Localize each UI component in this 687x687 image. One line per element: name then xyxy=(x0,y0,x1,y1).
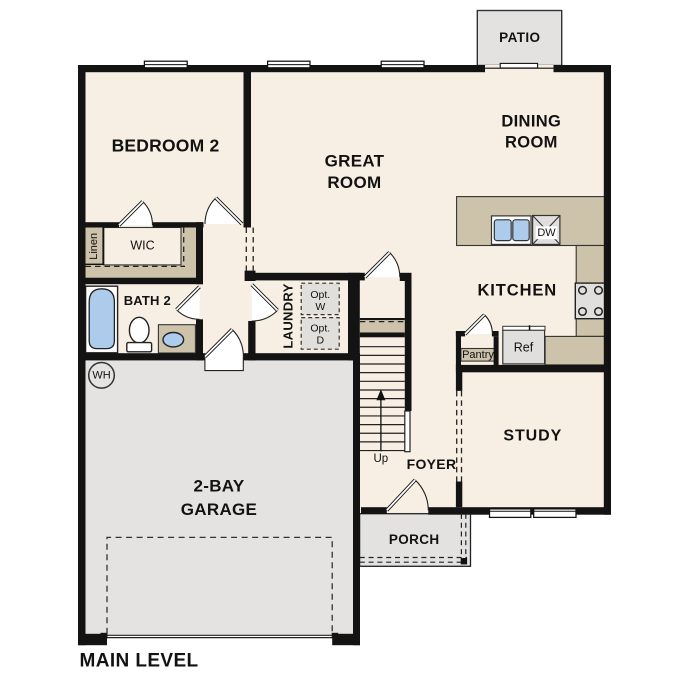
svg-text:Up: Up xyxy=(373,453,388,465)
svg-text:FOYER: FOYER xyxy=(407,456,457,472)
svg-text:PORCH: PORCH xyxy=(389,532,440,547)
svg-text:Linen: Linen xyxy=(88,233,100,260)
svg-text:Opt.: Opt. xyxy=(310,323,330,335)
svg-text:MAIN LEVEL: MAIN LEVEL xyxy=(80,651,199,672)
svg-text:DINING: DINING xyxy=(501,113,561,131)
svg-text:BATH 2: BATH 2 xyxy=(124,293,171,308)
svg-text:ROOM: ROOM xyxy=(327,173,381,192)
svg-text:LAUNDRY: LAUNDRY xyxy=(281,283,296,348)
svg-text:WH: WH xyxy=(92,370,110,382)
svg-text:D: D xyxy=(317,335,325,347)
svg-text:ROOM: ROOM xyxy=(505,133,558,151)
svg-text:WIC: WIC xyxy=(130,239,154,253)
svg-text:STUDY: STUDY xyxy=(503,428,562,445)
svg-text:Pantry: Pantry xyxy=(462,349,494,361)
svg-text:KITCHEN: KITCHEN xyxy=(477,282,557,300)
svg-text:DW: DW xyxy=(537,227,556,239)
svg-text:W: W xyxy=(315,301,325,313)
svg-text:BEDROOM 2: BEDROOM 2 xyxy=(112,136,220,156)
svg-text:Opt.: Opt. xyxy=(310,289,330,301)
svg-text:GARAGE: GARAGE xyxy=(181,500,257,519)
svg-text:Ref: Ref xyxy=(514,340,534,354)
svg-text:PATIO: PATIO xyxy=(499,30,540,45)
svg-text:2-BAY: 2-BAY xyxy=(194,476,245,495)
svg-text:GREAT: GREAT xyxy=(325,152,385,171)
